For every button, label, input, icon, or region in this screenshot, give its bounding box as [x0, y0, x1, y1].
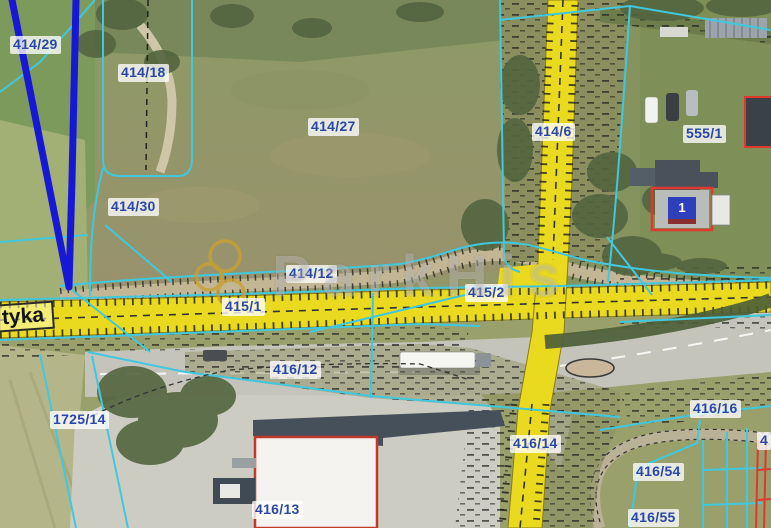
parcel-label-1725-14: 1725/14 [50, 411, 109, 429]
parcel-label-555-1: 555/1 [683, 125, 726, 143]
parcel-label-416-13: 416/13 [252, 501, 303, 519]
parcel-label-416-14: 416/14 [510, 435, 561, 453]
address-number-badge: 1 [668, 197, 696, 224]
building-555-1 [745, 97, 771, 147]
parcel-label-414-30: 414/30 [108, 198, 159, 216]
parcel-label-414-29: 414/29 [10, 36, 61, 54]
parcel-label-416-12: 416/12 [270, 361, 321, 379]
parcel-label-414-6: 414/6 [532, 123, 575, 141]
parcel-label-416-55: 416/55 [628, 509, 679, 527]
parcel-label-416-16: 416/16 [690, 400, 741, 418]
map-canvas [0, 0, 771, 528]
parcel-label-partial: 4 [757, 432, 771, 450]
street-name-label: tyka [0, 301, 55, 334]
parcel-label-414-12: 414/12 [286, 265, 337, 283]
parcel-label-416-54: 416/54 [633, 463, 684, 481]
parcel-label-414-18: 414/18 [118, 64, 169, 82]
cadastral-map-viewport[interactable]: 414/29 414/18 414/27 414/30 414/6 555/1 … [0, 0, 771, 528]
parcel-label-414-27: 414/27 [308, 118, 359, 136]
parcel-label-415-1: 415/1 [222, 298, 265, 316]
parcel-label-415-2: 415/2 [465, 284, 508, 302]
